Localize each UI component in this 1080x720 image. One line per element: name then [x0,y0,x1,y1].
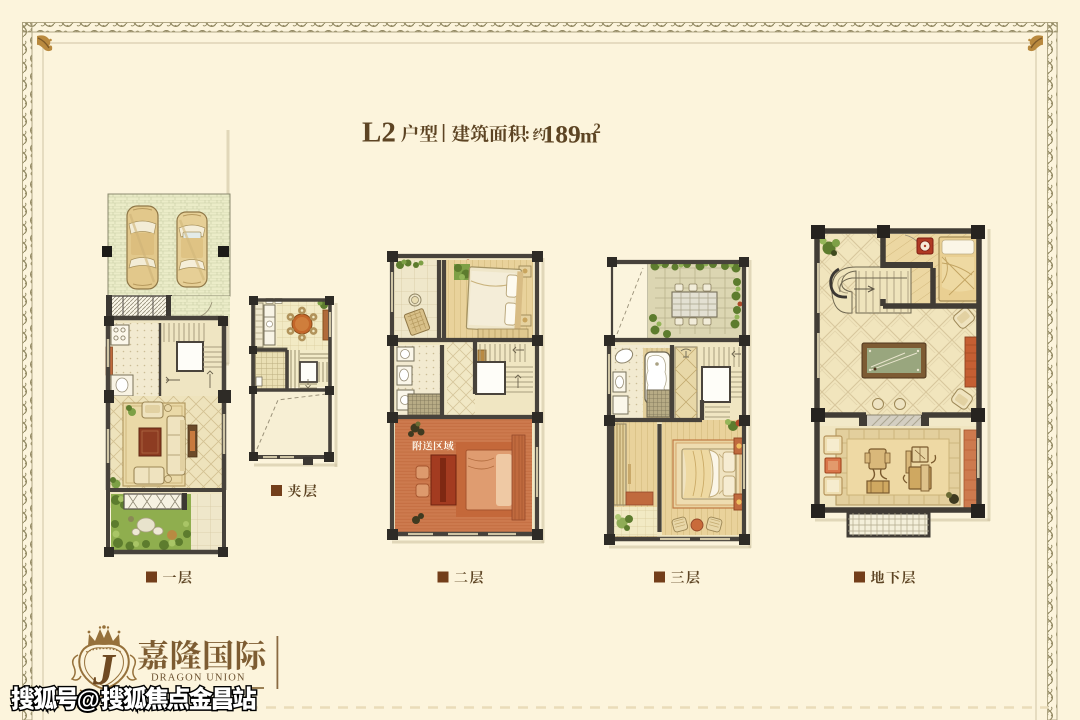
svg-text:@: @ [77,687,100,713]
svg-text:189: 189 [543,120,581,149]
svg-text::: : [525,124,531,143]
svg-text:L2: L2 [362,117,396,149]
svg-text:2: 2 [594,121,601,137]
svg-text:DRAGON UNION: DRAGON UNION [151,673,246,684]
